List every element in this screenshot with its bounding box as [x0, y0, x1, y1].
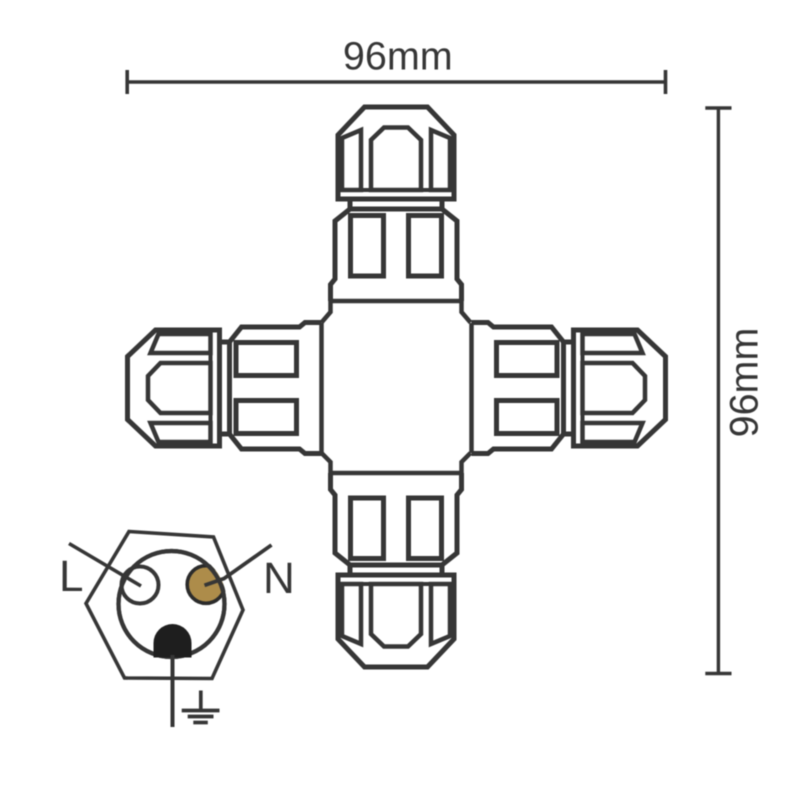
svg-text:L: L	[59, 552, 84, 601]
svg-text:N: N	[263, 554, 295, 603]
svg-text:96mm: 96mm	[723, 328, 767, 438]
svg-text:96mm: 96mm	[343, 34, 453, 78]
